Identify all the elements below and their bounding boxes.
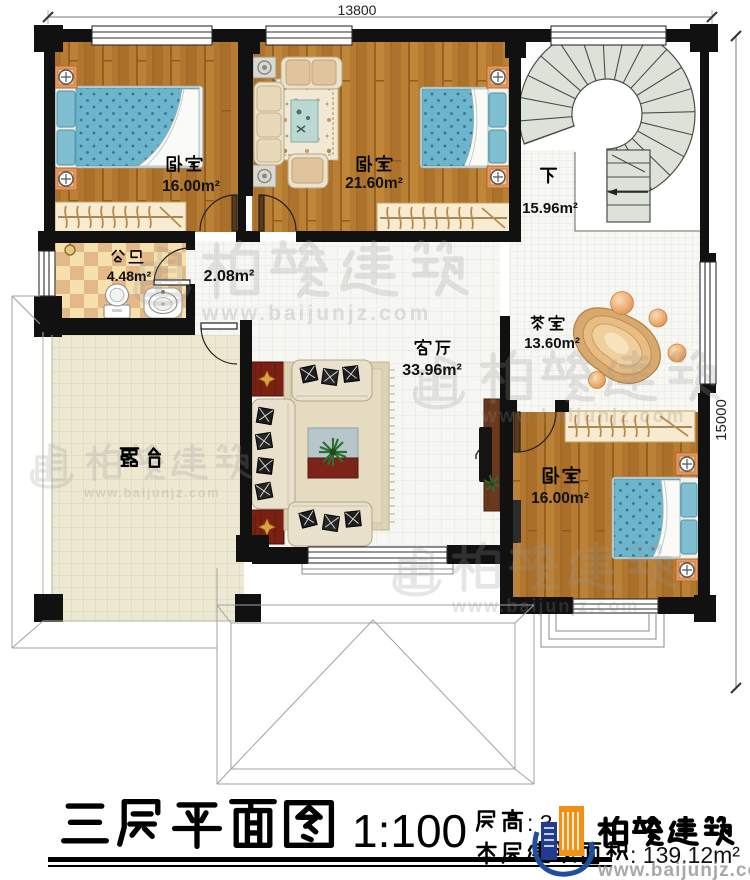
svg-text:33.96m²: 33.96m² (402, 362, 462, 379)
svg-text:4.48m²: 4.48m² (107, 268, 152, 284)
svg-text:www.baijunjz.com: www.baijunjz.com (597, 860, 750, 880)
svg-text:www.baijunjz.com: www.baijunjz.com (83, 485, 220, 500)
svg-text:1:100: 1:100 (352, 805, 467, 857)
svg-text:www.baijunjz.com: www.baijunjz.com (201, 302, 431, 325)
svg-text:21.60m²: 21.60m² (345, 175, 403, 192)
svg-text:www.baijunjz.com: www.baijunjz.com (481, 406, 686, 427)
svg-text:www.baijunjz.com: www.baijunjz.com (451, 596, 639, 616)
svg-text:15000: 15000 (713, 399, 730, 441)
svg-text:13800: 13800 (338, 2, 377, 18)
svg-text:16.00m²: 16.00m² (162, 178, 220, 195)
svg-text:15.96m²: 15.96m² (522, 200, 578, 217)
svg-text:2.08m²: 2.08m² (204, 268, 255, 285)
svg-text:13.60m²: 13.60m² (524, 335, 580, 352)
svg-text:16.00m²: 16.00m² (531, 490, 589, 507)
